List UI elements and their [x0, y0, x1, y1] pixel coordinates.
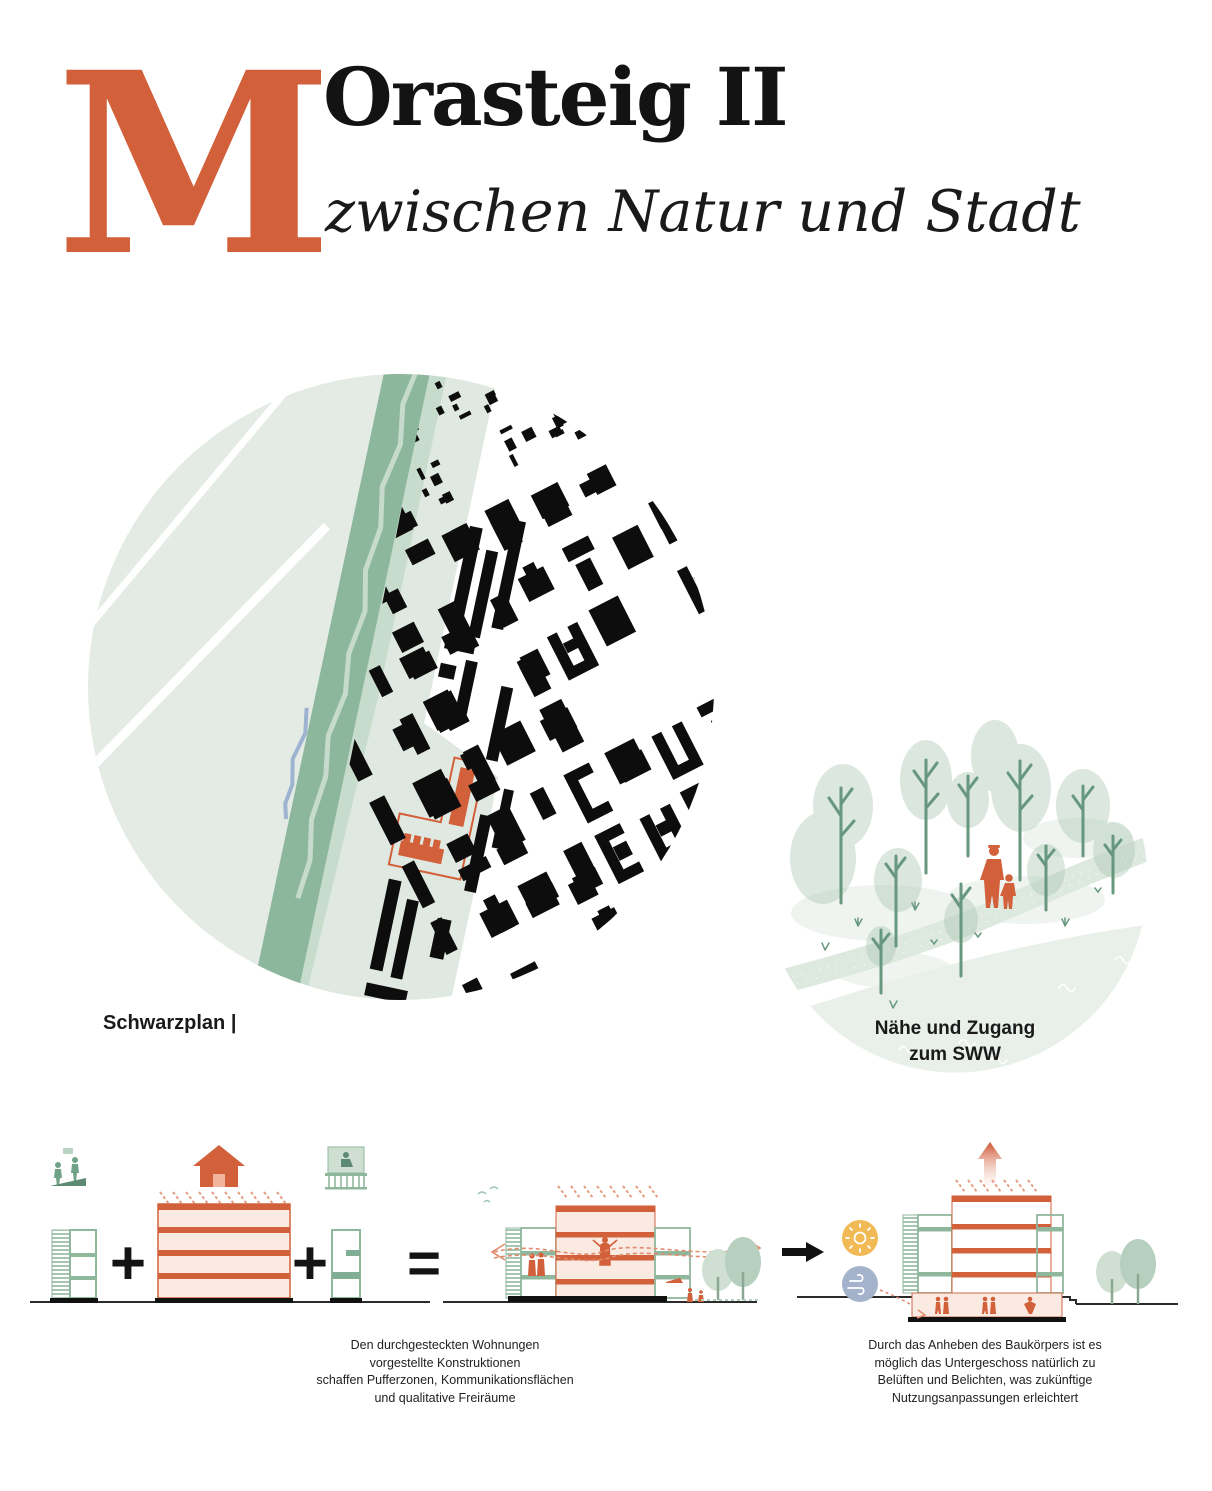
exhaust-arrow-icon — [978, 1142, 1002, 1185]
basement-level — [908, 1293, 1066, 1322]
caption-right-line: möglich das Untergeschoss natürlich zu — [805, 1355, 1165, 1373]
caption-left-line: und qualitative Freiräume — [265, 1390, 625, 1408]
house-icon — [193, 1145, 245, 1187]
caption-left-line: vorgestellte Konstruktionen — [265, 1355, 625, 1373]
combined-section — [478, 1186, 761, 1302]
trees-right — [1096, 1239, 1156, 1304]
caption-left-line: Den durchgesteckten Wohnungen — [265, 1337, 625, 1355]
caption-left-line: schaffen Pufferzonen, Kommunikationsfläc… — [265, 1372, 625, 1390]
transform-arrow-icon — [782, 1242, 824, 1262]
wind-icon — [842, 1266, 878, 1302]
schwarzplan-label: Schwarzplan | — [103, 1012, 236, 1035]
sww-label-line1: Nähe und Zugang — [805, 1016, 1105, 1042]
buffer-structure-left — [50, 1230, 98, 1303]
sww-label-line2: zum SWW — [805, 1042, 1105, 1068]
roof-hatch-right — [956, 1180, 1037, 1192]
housing-block — [155, 1192, 293, 1303]
page-subtitle: zwischen Natur und Stadt — [325, 184, 1081, 241]
lifted-building-section — [842, 1142, 1156, 1322]
drop-cap-letter: M — [56, 39, 333, 289]
birds-icon — [478, 1187, 498, 1202]
schwarzplan-map — [85, 365, 717, 1009]
sww-label: Nähe und Zugang zum SWW — [805, 1016, 1105, 1068]
balcony-person-icon — [325, 1147, 367, 1190]
plus-operator-1: + — [100, 1233, 156, 1295]
caption-right-line: Durch das Anheben des Baukörpers ist es — [805, 1337, 1165, 1355]
caption-right-line: Nutzungsanpassungen erleichtert — [805, 1390, 1165, 1408]
roof-hatch-middle — [558, 1186, 658, 1198]
trees-middle — [695, 1237, 761, 1300]
poster-page: M Orasteig II zwischen Natur und Stadt — [0, 0, 1212, 1491]
caption-right: Durch das Anheben des Baukörpers ist es … — [805, 1337, 1165, 1407]
concept-diagrams — [0, 1132, 1212, 1342]
equals-operator: = — [396, 1233, 452, 1295]
page-title: Orasteig II — [323, 57, 787, 137]
caption-right-line: Belüften und Belichten, was zukünftige — [805, 1372, 1165, 1390]
caption-left: Den durchgesteckten Wohnungen vorgestell… — [265, 1337, 625, 1407]
roof-hatch-left — [160, 1192, 286, 1204]
plus-operator-2: + — [282, 1233, 338, 1295]
children-playing-icon — [50, 1148, 86, 1186]
